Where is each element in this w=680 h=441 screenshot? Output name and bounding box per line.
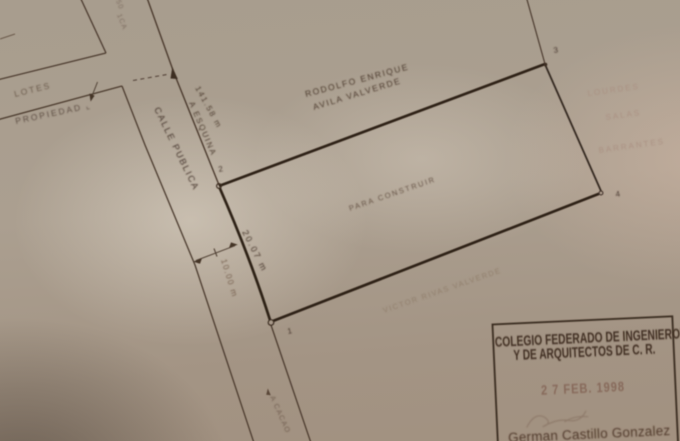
svg-text:4: 4	[615, 189, 621, 199]
svg-text:50: 50	[114, 0, 124, 11]
svg-text:German Castillo Gonzalez: German Castillo Gonzalez	[508, 423, 671, 441]
svg-text:BARRANTES: BARRANTES	[598, 137, 666, 155]
svg-text:2 7 FEB. 1998: 2 7 FEB. 1998	[541, 379, 626, 398]
svg-text:VICTOR RIVAS VALVERDE: VICTOR RIVAS VALVERDE	[382, 266, 503, 315]
svg-text:1: 1	[287, 326, 294, 336]
svg-text:PROPIEDAD ⌞: PROPIEDAD ⌞	[14, 100, 92, 126]
svg-text:2: 2	[218, 164, 225, 174]
svg-text:LOURDES: LOURDES	[587, 82, 640, 98]
svg-text:3: 3	[553, 45, 559, 55]
svg-text:10.00 m: 10.00 m	[219, 258, 240, 299]
svg-text:LOTES: LOTES	[13, 80, 52, 99]
svg-text:PARA CONSTRUIR: PARA CONSTRUIR	[348, 175, 437, 213]
svg-text:1CA: 1CA	[115, 13, 128, 31]
svg-text:A CACAO: A CACAO	[268, 394, 293, 435]
svg-text:SALAS: SALAS	[605, 108, 642, 122]
